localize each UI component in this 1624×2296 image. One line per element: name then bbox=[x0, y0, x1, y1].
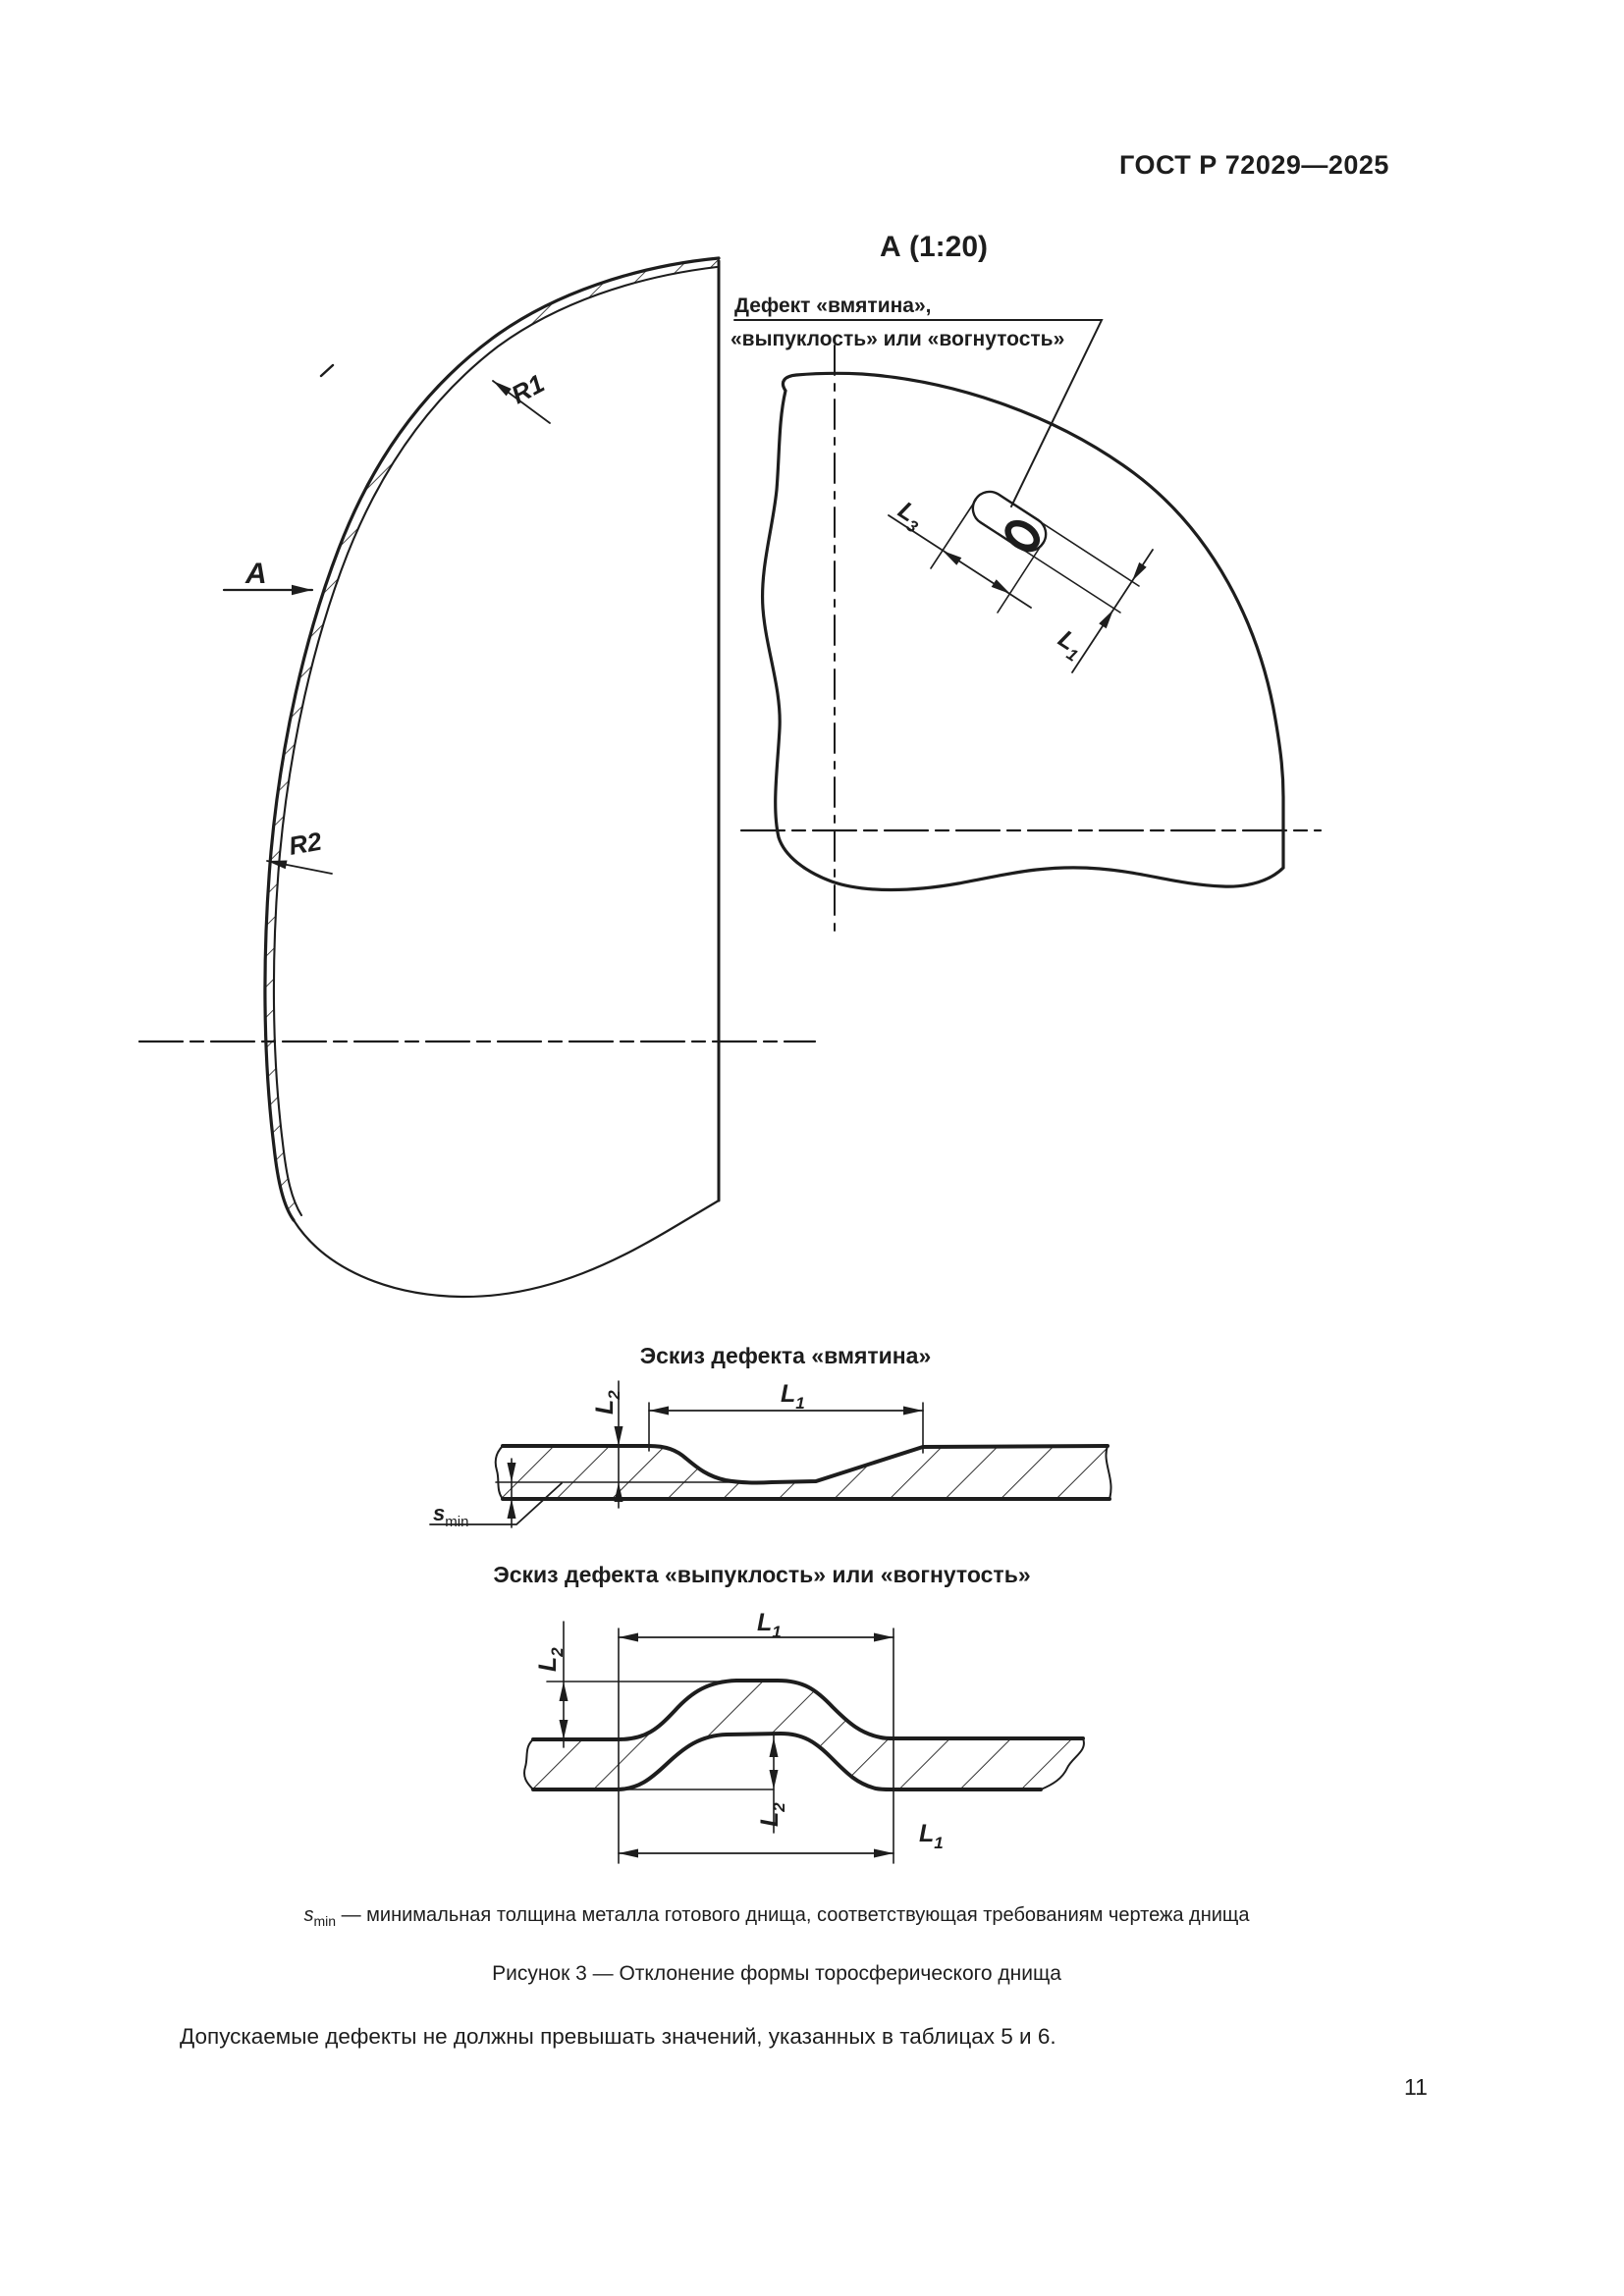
bulge-lower-l1-arrowhead-icon bbox=[619, 1849, 638, 1858]
bulge-lower-l1-arrowhead-icon bbox=[874, 1849, 893, 1858]
head-section-view bbox=[139, 258, 815, 1297]
bulge-upper-l2-label: L2 bbox=[534, 1647, 567, 1672]
view-a-drawing bbox=[734, 320, 1321, 937]
defect-callout-line1: Дефект «вмятина», bbox=[734, 294, 931, 317]
bulge-sketch-title: Эскиз дефекта «выпуклость» или «вогнутос… bbox=[493, 1562, 1030, 1587]
page-number: 11 bbox=[1404, 2074, 1428, 2101]
figure-caption: Рисунок 3 — Отклонение формы торосфериче… bbox=[0, 1962, 1553, 1986]
l1-extension-line-2 bbox=[1020, 548, 1120, 613]
defect-callout-line2: «выпуклость» или «вогнутость» bbox=[731, 328, 1064, 350]
bulge-upper-l1-arrowhead-icon bbox=[619, 1633, 638, 1642]
bulge-lower-l2-label: L2 bbox=[756, 1802, 788, 1827]
bulge-plate-hatch bbox=[524, 1681, 1084, 1789]
l1-dimension-label: L1 bbox=[1051, 625, 1089, 666]
bulge-upper-l1-label: L1 bbox=[757, 1609, 782, 1641]
body-paragraph: Допускаемые дефекты не должны превышать … bbox=[180, 2024, 1397, 2050]
dent-l2-arrowhead-icon bbox=[615, 1426, 623, 1446]
figure-3-drawing: А R1 R2 А (1:20) bbox=[0, 0, 1624, 2296]
l1-extension-line-1 bbox=[999, 495, 1139, 586]
dent-l1-label: L1 bbox=[781, 1380, 805, 1413]
smin-arrowhead-icon bbox=[508, 1499, 516, 1519]
smin-symbol-subscript: min bbox=[313, 1913, 336, 1929]
bulge-upper-l1-arrowhead-icon bbox=[874, 1633, 893, 1642]
dent-sketch-title: Эскиз дефекта «вмятина» bbox=[640, 1343, 932, 1368]
smin-label: smin bbox=[433, 1501, 468, 1530]
dent-sketch bbox=[430, 1381, 1111, 1527]
view-a-arrowhead-icon bbox=[292, 585, 312, 595]
smin-definition-note: smin — минимальная толщина металла готов… bbox=[0, 1904, 1553, 1929]
bulge-lower-l2-arrowhead-icon bbox=[770, 1770, 779, 1789]
radius1-label: R1 bbox=[507, 368, 549, 409]
l1-arrowhead-icon bbox=[1132, 562, 1147, 581]
head-outer-profile-curve bbox=[265, 258, 719, 1220]
scan-artifact-mark bbox=[321, 365, 333, 376]
bulge-upper-l2-arrowhead-icon bbox=[560, 1720, 568, 1739]
dent-l1-arrowhead-icon bbox=[649, 1407, 669, 1415]
smin-note-text: — минимальная толщина металла готового д… bbox=[336, 1904, 1249, 1926]
dent-plate-hatch bbox=[496, 1446, 1111, 1499]
l3-arrowhead-icon bbox=[992, 579, 1010, 594]
bulge-upper-l2-arrowhead-icon bbox=[560, 1682, 568, 1701]
l3-arrowhead-icon bbox=[943, 551, 961, 565]
bulge-sketch bbox=[524, 1622, 1084, 1863]
bulge-lower-l1-label: L1 bbox=[919, 1820, 944, 1852]
radius2-label: R2 bbox=[287, 826, 324, 860]
bulge-lower-l2-arrowhead-icon bbox=[770, 1737, 779, 1757]
head-break-line bbox=[294, 1201, 719, 1297]
head-wall-hatched-strip bbox=[265, 258, 719, 1220]
document-page: ГОСТ Р 72029—2025 bbox=[0, 0, 1624, 2296]
head-inner-profile-curve bbox=[274, 267, 717, 1215]
view-a-title: А (1:20) bbox=[880, 231, 988, 263]
dent-l1-arrowhead-icon bbox=[903, 1407, 923, 1415]
l1-arrowhead-icon bbox=[1099, 610, 1113, 628]
smin-symbol: s bbox=[303, 1904, 313, 1926]
view-a-surface-outline bbox=[763, 373, 1283, 889]
l3-extension-line-2 bbox=[998, 543, 1043, 613]
defect-core bbox=[1003, 518, 1041, 553]
view-direction-letter: А bbox=[244, 558, 267, 590]
l3-dimension-label: L3 bbox=[891, 497, 929, 537]
